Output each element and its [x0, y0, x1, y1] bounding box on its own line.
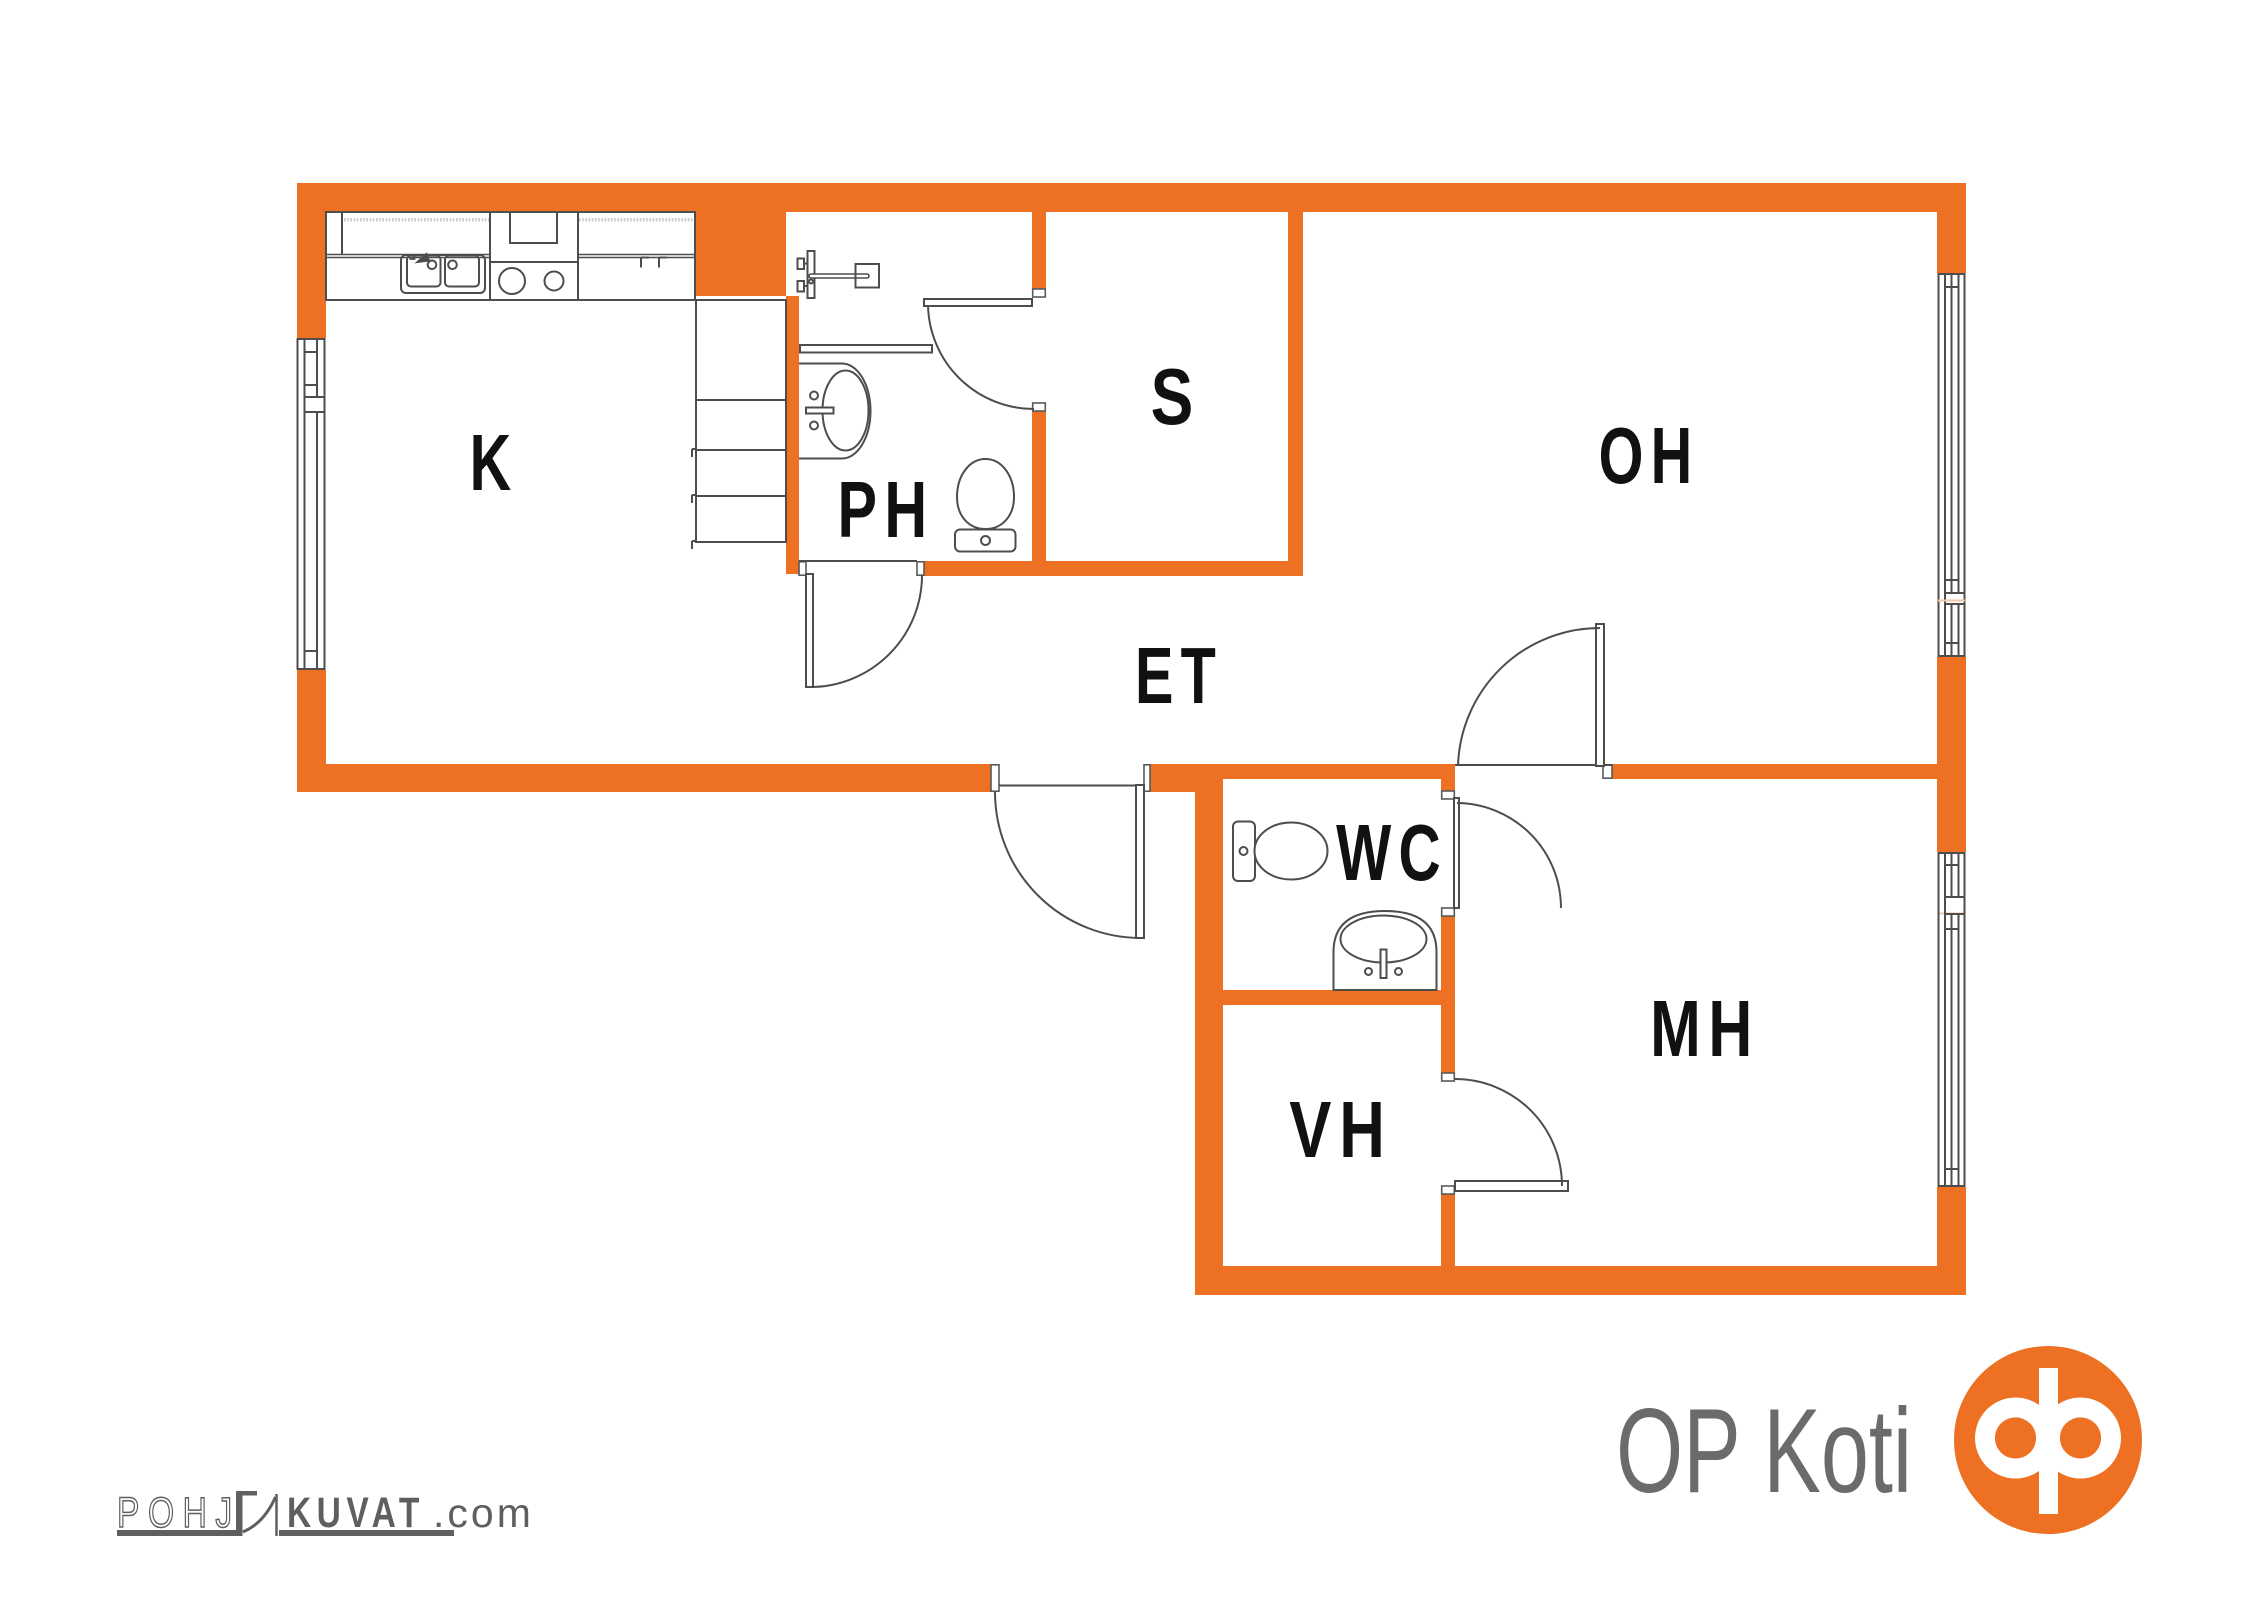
svg-text:S: S: [1151, 352, 1202, 441]
svg-text:MH: MH: [1650, 985, 1760, 1074]
svg-text:ET: ET: [1135, 631, 1223, 721]
svg-text:WC: WC: [1336, 808, 1448, 897]
svg-text:K: K: [470, 418, 519, 508]
svg-text:OH: OH: [1599, 411, 1700, 501]
svg-text:POHJ: POHJ: [117, 1489, 241, 1537]
svg-text:VH: VH: [1289, 1086, 1393, 1175]
svg-text:KUVAT: KUVAT: [287, 1489, 425, 1537]
svg-text:.com: .com: [433, 1490, 534, 1536]
svg-text:PH: PH: [837, 464, 934, 554]
svg-text:OP Koti: OP Koti: [1616, 1384, 1912, 1518]
